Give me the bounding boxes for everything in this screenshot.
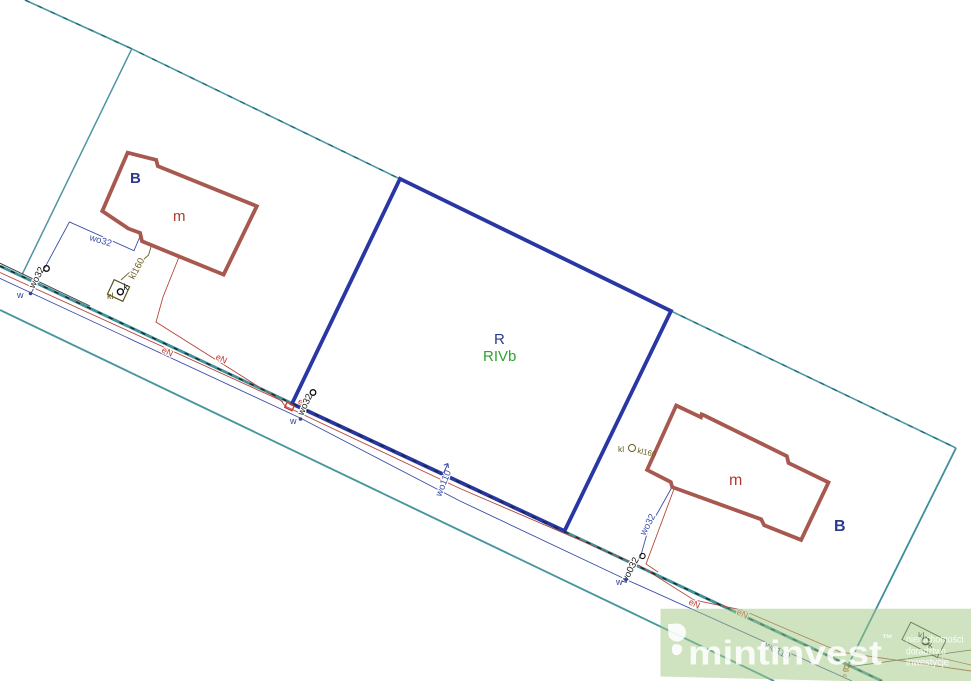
svg-text:kl: kl xyxy=(618,444,624,454)
svg-text:B: B xyxy=(834,518,846,535)
svg-text:mintinvest: mintinvest xyxy=(688,635,882,673)
svg-text:k: k xyxy=(124,282,129,292)
svg-text:nieruchomości: nieruchomości xyxy=(906,635,964,646)
svg-text:w: w xyxy=(16,290,24,300)
svg-text:w: w xyxy=(289,416,297,426)
svg-text:R: R xyxy=(494,331,505,348)
svg-text:m: m xyxy=(729,472,742,489)
svg-text:RIVb: RIVb xyxy=(483,348,516,365)
svg-text:™: ™ xyxy=(882,633,893,645)
svg-text:inwestycje: inwestycje xyxy=(906,658,949,669)
svg-text:m: m xyxy=(173,208,186,225)
svg-text:kl: kl xyxy=(107,291,114,301)
svg-text:w: w xyxy=(615,577,623,587)
svg-text:B: B xyxy=(130,170,141,187)
svg-text:doradztwo: doradztwo xyxy=(906,647,946,658)
